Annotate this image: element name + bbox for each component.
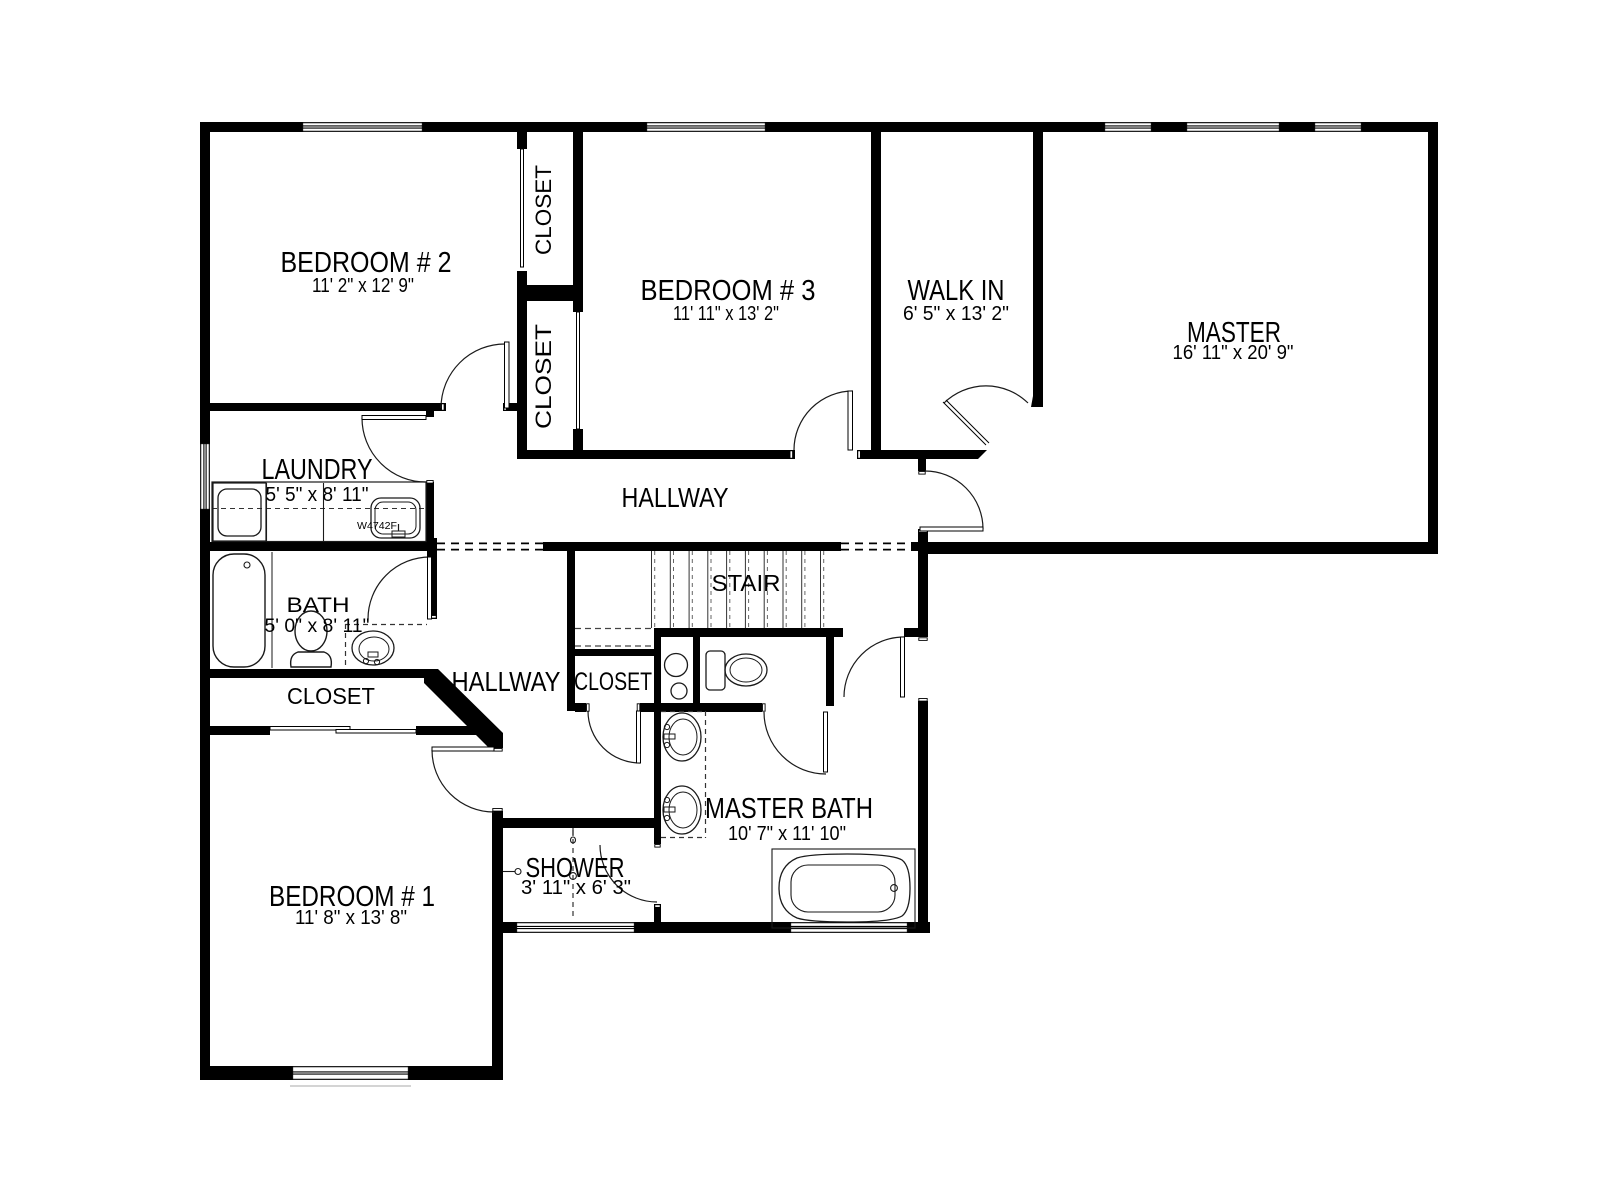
svg-text:10' 7" x 11' 10": 10' 7" x 11' 10" — [728, 823, 846, 845]
svg-text:LAUNDRY: LAUNDRY — [262, 454, 373, 486]
svg-text:5' 0" x 8' 11": 5' 0" x 8' 11" — [265, 616, 370, 637]
svg-text:CLOSET: CLOSET — [531, 165, 556, 255]
svg-text:5' 5" x 8' 11": 5' 5" x 8' 11" — [266, 484, 369, 506]
svg-text:11' 11" x 13' 2": 11' 11" x 13' 2" — [673, 303, 779, 325]
svg-text:CLOSET: CLOSET — [287, 683, 375, 709]
svg-text:16' 11" x 20' 9": 16' 11" x 20' 9" — [1173, 342, 1294, 364]
svg-text:11' 2" x 12' 9": 11' 2" x 12' 9" — [312, 275, 414, 297]
svg-text:BATH: BATH — [287, 594, 350, 617]
svg-text:HALLWAY: HALLWAY — [622, 482, 729, 513]
svg-text:MASTER BATH: MASTER BATH — [705, 793, 873, 825]
svg-text:3' 11" x 6' 3": 3' 11" x 6' 3" — [521, 877, 631, 899]
svg-text:11' 8" x 13' 8": 11' 8" x 13' 8" — [295, 907, 407, 929]
svg-text:STAIR: STAIR — [712, 570, 781, 596]
svg-text:CLOSET: CLOSET — [574, 668, 652, 696]
svg-text:CLOSET: CLOSET — [531, 324, 556, 429]
svg-text:6' 5" x 13' 2": 6' 5" x 13' 2" — [903, 303, 1009, 325]
svg-text:HALLWAY: HALLWAY — [452, 666, 561, 697]
svg-text:W4742F: W4742F — [357, 521, 397, 532]
